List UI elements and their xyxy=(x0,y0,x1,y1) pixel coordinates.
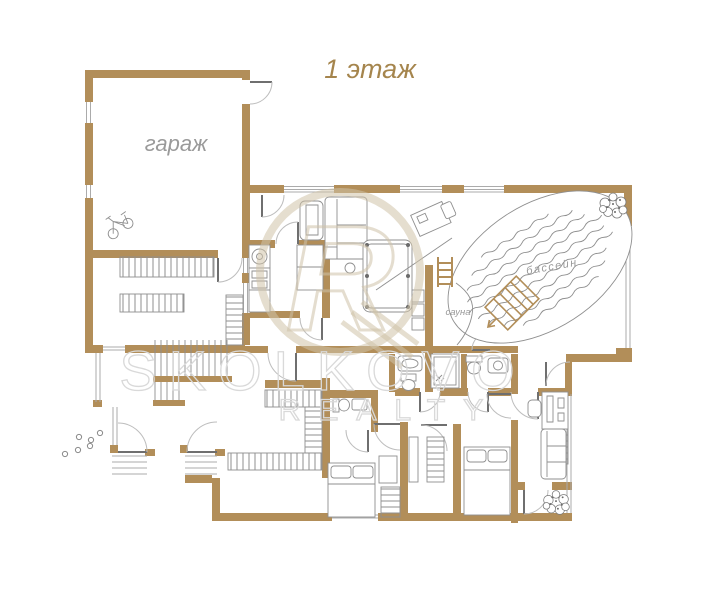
desk-icon xyxy=(411,198,459,236)
floor-plan-canvas: 1 этаж xyxy=(0,0,720,600)
sauna-label: сауна xyxy=(446,307,471,318)
bicycle-icon xyxy=(100,207,135,240)
floor-plan-svg: 1 этаж xyxy=(0,0,720,600)
bed-icon xyxy=(328,463,375,517)
wardrobe-icon xyxy=(427,437,444,482)
watermark-line1: SKOLKOVO xyxy=(119,339,526,402)
shelf-icon xyxy=(226,295,243,345)
dresser-icon xyxy=(379,456,397,483)
desk-icon xyxy=(528,392,568,429)
wardrobe-icon xyxy=(381,487,400,517)
watermark-emblem-letter: R xyxy=(286,194,394,362)
stepping-stones-icon xyxy=(62,430,102,456)
floor-title: 1 этаж xyxy=(324,54,417,84)
garage-label: гараж xyxy=(145,131,208,156)
wardrobe-icon xyxy=(228,453,322,470)
chair-icon xyxy=(528,400,541,417)
shelf-icon xyxy=(120,294,184,312)
shelf-icon xyxy=(120,257,214,277)
bed-icon xyxy=(464,447,510,515)
watermark-line2: REALTY xyxy=(279,394,501,427)
pool-ladder-icon xyxy=(438,257,452,287)
sofa-icon xyxy=(541,429,566,479)
dresser-icon xyxy=(409,437,418,482)
